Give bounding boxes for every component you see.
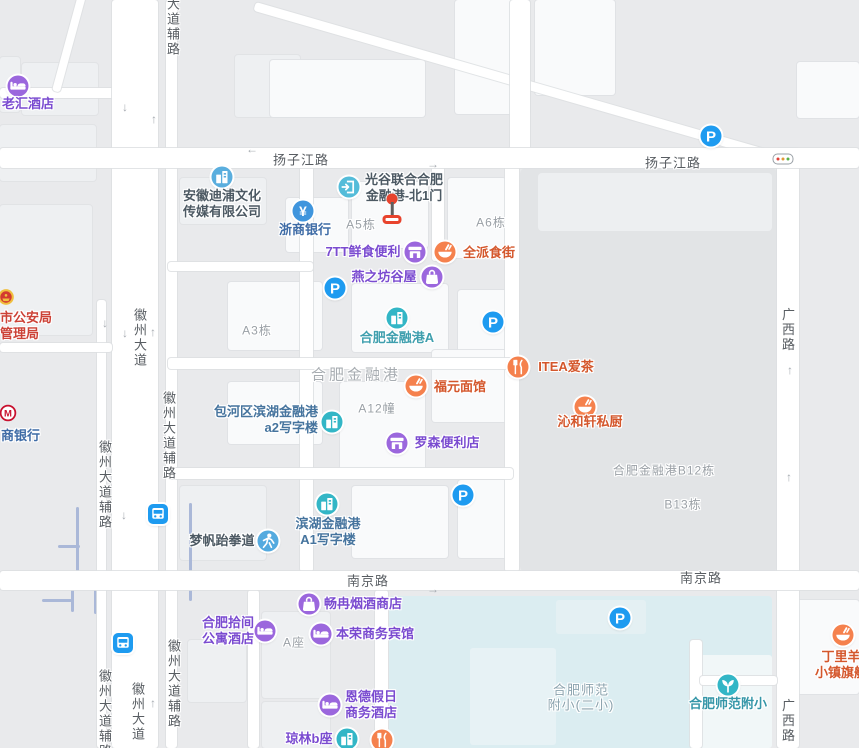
map-canvas[interactable]: 扬子江路扬子江路南京路南京路大道辅路徽州大道徽州大道辅路徽州大道辅路徽州大道辅路… (0, 0, 859, 748)
destination-marker-stem (391, 202, 394, 215)
marker-layer (0, 0, 859, 748)
destination-marker-base (383, 215, 402, 224)
traffic-light-icon (773, 154, 794, 165)
